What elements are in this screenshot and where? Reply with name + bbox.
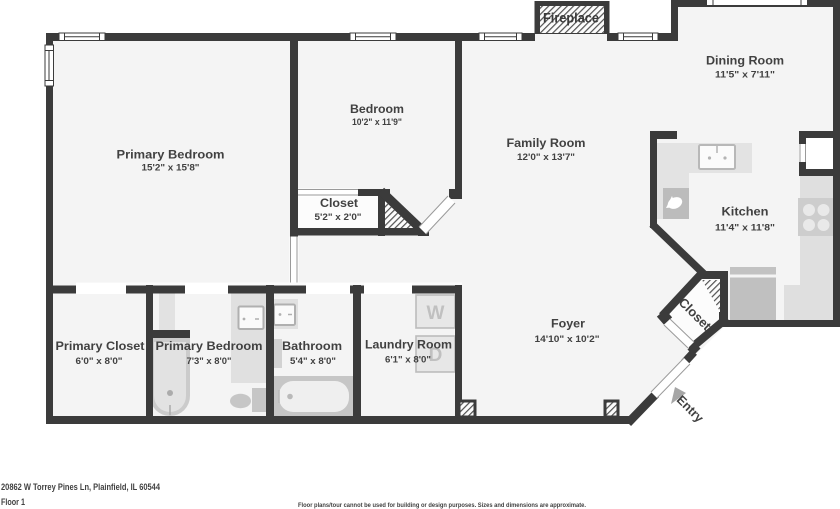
svg-text:15'2" x 15'8": 15'2" x 15'8" <box>142 163 200 173</box>
svg-text:Closet: Closet <box>320 196 358 210</box>
svg-text:14'10" x 10'2": 14'10" x 10'2" <box>535 334 600 344</box>
svg-text:Primary Bedroom: Primary Bedroom <box>117 148 225 162</box>
svg-text:5'4" x 8'0": 5'4" x 8'0" <box>290 356 336 366</box>
svg-text:10'2" x 11'9": 10'2" x 11'9" <box>352 117 402 127</box>
svg-text:5'2" x 2'0": 5'2" x 2'0" <box>315 212 362 222</box>
svg-text:W: W <box>427 303 445 324</box>
svg-text:Floor 1: Floor 1 <box>1 497 25 507</box>
svg-text:Primary Bedroom: Primary Bedroom <box>156 339 263 353</box>
svg-text:Bathroom: Bathroom <box>282 339 342 353</box>
svg-text:Bedroom: Bedroom <box>350 102 404 116</box>
svg-text:12'0" x 13'7": 12'0" x 13'7" <box>517 152 575 162</box>
svg-text:6'1" x 8'0": 6'1" x 8'0" <box>385 355 431 365</box>
svg-text:Foyer: Foyer <box>551 317 585 331</box>
svg-text:Entry: Entry <box>674 393 707 426</box>
svg-text:11'4" x 11'8": 11'4" x 11'8" <box>715 223 775 233</box>
svg-text:Family Room: Family Room <box>507 136 586 150</box>
svg-text:11'5" x 7'11": 11'5" x 7'11" <box>715 70 775 80</box>
svg-text:Dining Room: Dining Room <box>706 54 784 68</box>
svg-text:20862 W Torrey Pines Ln, Plain: 20862 W Torrey Pines Ln, Plainfield, IL … <box>1 482 160 492</box>
svg-text:Laundry Room: Laundry Room <box>365 338 452 352</box>
svg-text:7'3" x 8'0": 7'3" x 8'0" <box>187 356 232 366</box>
svg-text:Floor plans/tour cannot be use: Floor plans/tour cannot be used for buil… <box>298 502 586 509</box>
svg-text:Kitchen: Kitchen <box>722 205 769 219</box>
svg-text:6'0" x 8'0": 6'0" x 8'0" <box>76 356 123 366</box>
svg-text:Primary Closet: Primary Closet <box>56 339 145 353</box>
svg-text:Fireplace: Fireplace <box>543 10 599 26</box>
